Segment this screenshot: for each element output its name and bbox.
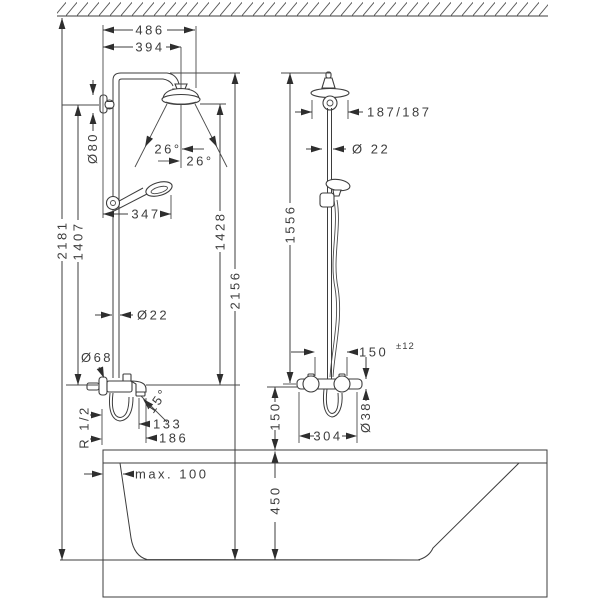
technical-drawing: 486 394 2181 1407 Ø80 26° 26° 347 1428 2… — [0, 0, 600, 600]
thermostat-knob-left — [303, 376, 319, 392]
mixer-handle — [87, 383, 99, 390]
dim-connection-thread: R 1/2 — [77, 405, 92, 449]
side-view — [297, 72, 362, 417]
overhead-shower-side — [311, 72, 349, 110]
dim-head-projection: 187/187 — [367, 105, 432, 120]
thermostat-side — [297, 374, 362, 392]
dim-spray-angle-right: 26° — [186, 154, 213, 169]
shower-riser-pipe — [113, 73, 179, 378]
dim-head-center-width: 394 — [135, 40, 164, 55]
dim-pipe-diameter-front: Ø22 — [137, 308, 169, 323]
handshower-side — [320, 178, 351, 207]
front-view — [87, 73, 200, 421]
dim-valve-depth: 304 — [313, 429, 342, 444]
dim-head-to-mixer-height: 1428 — [213, 212, 228, 251]
dim-valve-diameter: Ø38 — [358, 401, 373, 433]
dim-supply-tolerance: ±12 — [396, 341, 415, 352]
dim-overall-width: 486 — [135, 23, 164, 38]
mixer-escutcheon — [99, 377, 107, 395]
dim-total-height: 2181 — [55, 221, 70, 260]
mixer-spout — [131, 381, 146, 392]
dim-bracket-to-mixer-height: 1407 — [71, 222, 86, 261]
ball-joint — [323, 96, 337, 110]
dim-pipe-height: 1556 — [283, 205, 298, 244]
thermostat-knob-right — [334, 376, 350, 392]
dim-spout-reach: 133 — [153, 417, 182, 432]
holder-bracket — [320, 193, 334, 207]
dim-tub-rim-height: 450 — [268, 485, 283, 514]
wall-bracket — [100, 95, 114, 113]
dim-rim-to-valve-height: 150 — [268, 401, 283, 430]
dim-pipe-top-to-floor: 2156 — [228, 271, 243, 310]
dim-escutcheon-diameter: Ø68 — [81, 350, 113, 365]
riser-pipe-side — [328, 108, 332, 379]
dim-max-wall-distance: max. 100 — [135, 467, 208, 482]
dimension-labels: 486 394 2181 1407 Ø80 26° 26° 347 1428 2… — [55, 23, 432, 515]
dim-handshower-width: 347 — [131, 207, 160, 222]
dim-spout-angle: 15° — [143, 385, 171, 416]
mixer-body — [107, 381, 132, 392]
dim-supply-distance: 150 — [359, 345, 388, 360]
dim-pipe-diameter-side: Ø 22 — [352, 142, 390, 157]
slider-holder — [107, 197, 120, 210]
overhead-shower-front — [162, 89, 200, 105]
dim-bracket-diameter: Ø80 — [85, 132, 100, 164]
ceiling-hatch — [57, 2, 548, 16]
dim-spray-angle-left: 26° — [154, 142, 181, 157]
dim-spout-reach-outer: 186 — [159, 431, 188, 446]
dimension-lines — [62, 18, 366, 560]
